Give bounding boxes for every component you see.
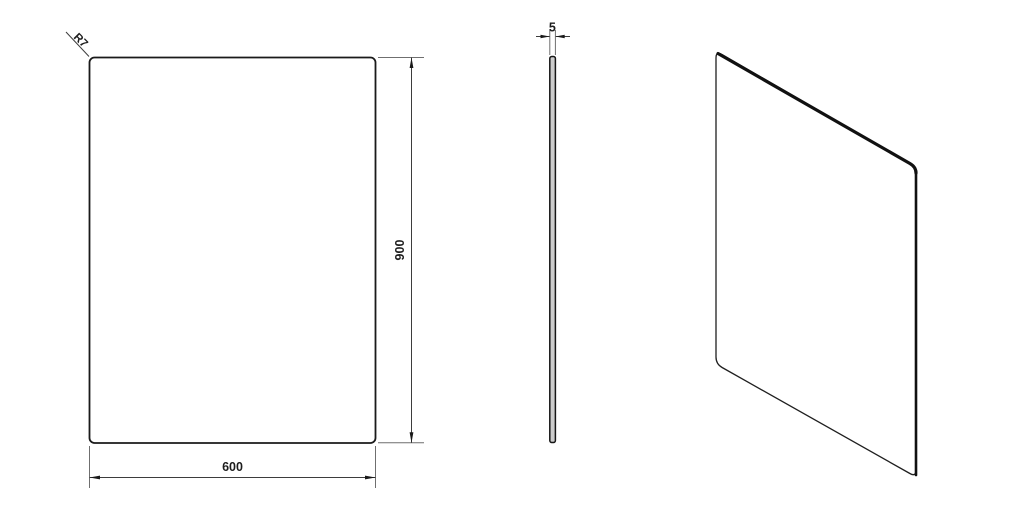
dim-width: 600 [90, 446, 376, 488]
thickness-dimension-label: 5 [549, 21, 556, 35]
front-view [90, 58, 376, 444]
arrow-left-icon [90, 476, 101, 480]
dim-height: 900 [378, 58, 424, 443]
arrow-right-icon [365, 476, 376, 480]
radius-callout: R7 [66, 31, 90, 56]
isometric-panel-outline [716, 53, 916, 474]
side-view-panel-profile [550, 57, 556, 443]
isometric-top-edge [718, 54, 916, 174]
side-view [550, 57, 556, 443]
mirror-panel-drawing: R7 900 600 [0, 0, 1024, 528]
arrow-up-icon [410, 58, 414, 69]
isometric-view [716, 53, 916, 475]
arrow-right-icon [541, 35, 550, 38]
dim-thickness: 5 [536, 21, 570, 56]
technical-drawing-sheet: R7 900 600 [0, 0, 1024, 528]
arrow-down-icon [410, 432, 414, 443]
front-view-panel-outline [90, 58, 376, 444]
width-dimension-label: 600 [222, 460, 243, 474]
height-dimension-label: 900 [393, 240, 407, 261]
radius-label: R7 [71, 31, 90, 50]
arrow-left-icon [555, 35, 564, 38]
